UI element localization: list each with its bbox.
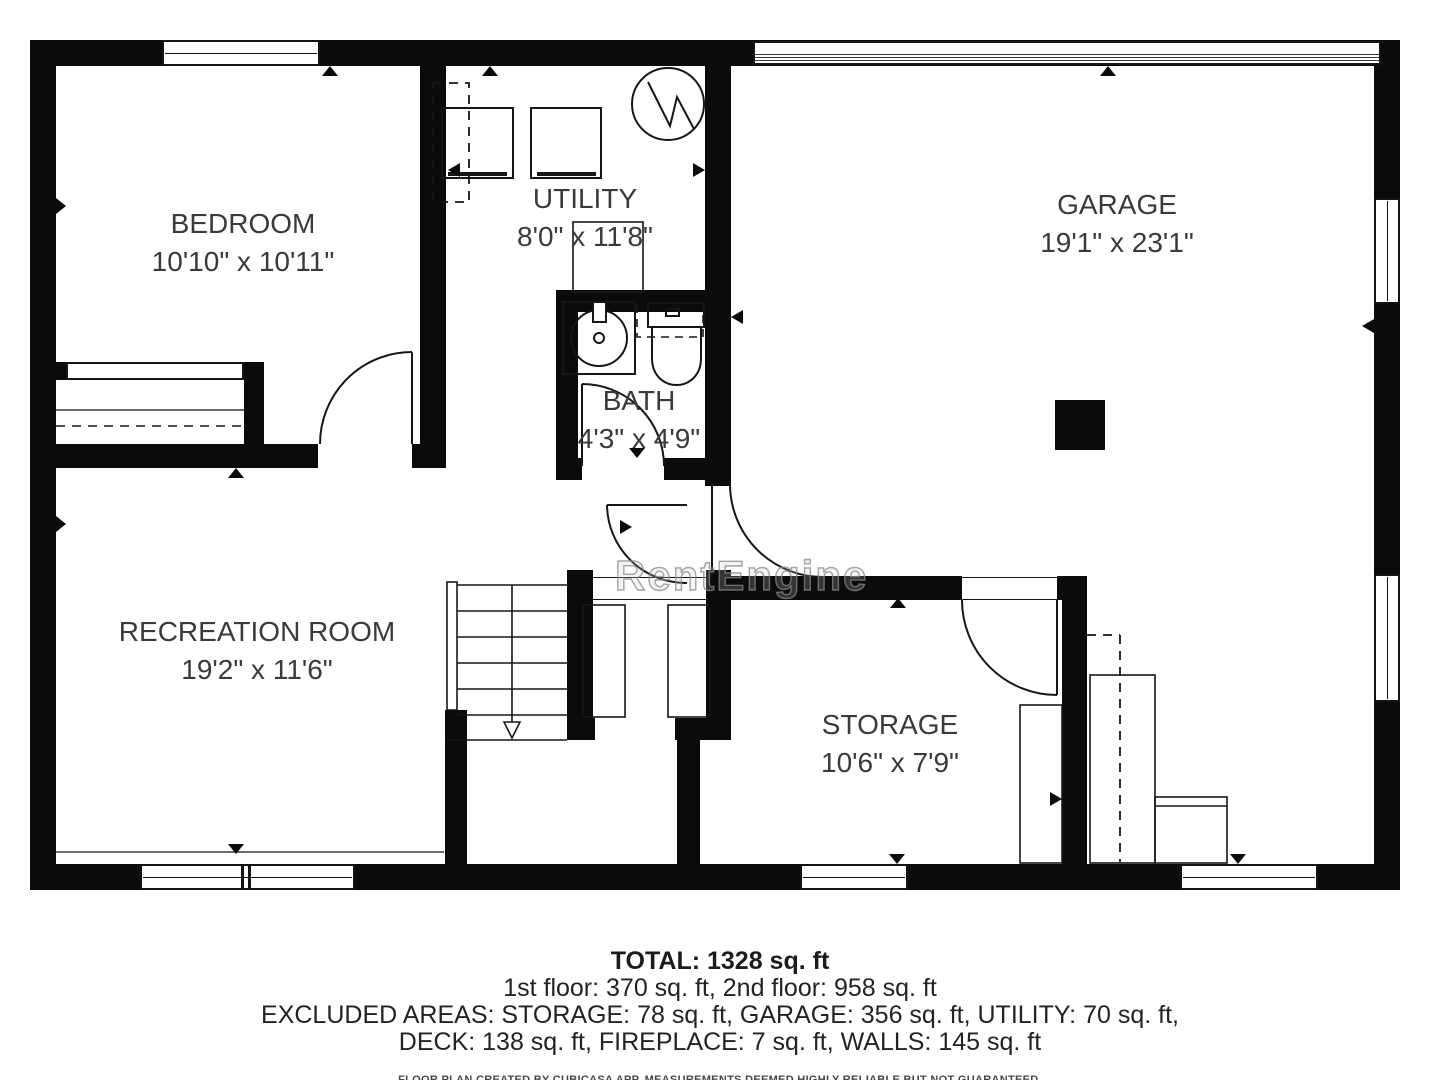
excluded-areas-2: DECK: 138 sq. ft, FIREPLACE: 7 sq. ft, W… [0,1029,1440,1056]
marker-left-icon [731,310,743,324]
room-name: GARAGE [1040,186,1194,224]
marker-up-icon [1100,66,1116,76]
toilet-icon [637,303,704,385]
watermark: RentEngine [615,552,868,600]
marker-up-icon [322,66,338,76]
dryer [531,108,601,178]
storage-door [962,600,1057,695]
utility-label: UTILITY 8'0" x 11'8" [517,180,653,256]
recreation-label: RECREATION ROOM 19'2" x 11'6" [119,613,395,689]
room-name: STORAGE [821,706,959,744]
bath-label: BATH 4'3" x 4'9" [578,382,700,458]
fixtures-layer [0,0,1440,1080]
room-dims: 4'3" x 4'9" [578,420,700,458]
marker-right-icon [620,520,632,534]
floor-areas: 1st floor: 370 sq. ft, 2nd floor: 958 sq… [0,975,1440,1002]
stairs-down-arrow-icon [504,722,520,738]
marker-right-icon [56,198,66,214]
marker-right-icon [1050,792,1062,806]
marker-up-icon [890,598,906,608]
marker-down-icon [889,854,905,864]
exterior-steps [1087,635,1227,863]
bedroom-label: BEDROOM 10'10" x 10'11" [152,205,335,281]
room-name: BEDROOM [152,205,335,243]
sink-icon [563,302,635,374]
room-name: UTILITY [517,180,653,218]
room-dims: 19'2" x 11'6" [119,651,395,689]
marker-up-icon [228,468,244,478]
garage-label: GARAGE 19'1" x 23'1" [1040,186,1194,262]
excluded-areas-1: EXCLUDED AREAS: STORAGE: 78 sq. ft, GARA… [0,1002,1440,1029]
floor-plan: BEDROOM 10'10" x 10'11" UTILITY 8'0" x 1… [0,0,1440,1080]
disclaimer: FLOOR PLAN CREATED BY CUBICASA APP. MEAS… [0,1074,1440,1080]
storage-shelf [1020,705,1062,863]
area-summary: TOTAL: 1328 sq. ft 1st floor: 370 sq. ft… [0,948,1440,1080]
water-heater-icon [632,68,704,140]
marker-down-icon [1230,854,1246,864]
room-name: RECREATION ROOM [119,613,395,651]
marker-right-icon [693,163,705,177]
room-dims: 19'1" x 23'1" [1040,224,1194,262]
closet-unit-left [583,605,625,717]
bedroom-closet-shelf [56,410,244,426]
closet-unit-right [668,605,710,717]
bedroom-door [320,352,412,444]
stairs [447,582,567,740]
total-area: TOTAL: 1328 sq. ft [0,948,1440,975]
marker-left-icon [1362,319,1374,333]
marker-up-icon [482,66,498,76]
utility-dashed-clearance [433,83,469,202]
room-dims: 10'6" x 7'9" [821,744,959,782]
room-name: BATH [578,382,700,420]
marker-right-icon [56,516,66,532]
room-dims: 8'0" x 11'8" [517,218,653,256]
storage-label: STORAGE 10'6" x 7'9" [821,706,959,782]
room-dims: 10'10" x 10'11" [152,243,335,281]
